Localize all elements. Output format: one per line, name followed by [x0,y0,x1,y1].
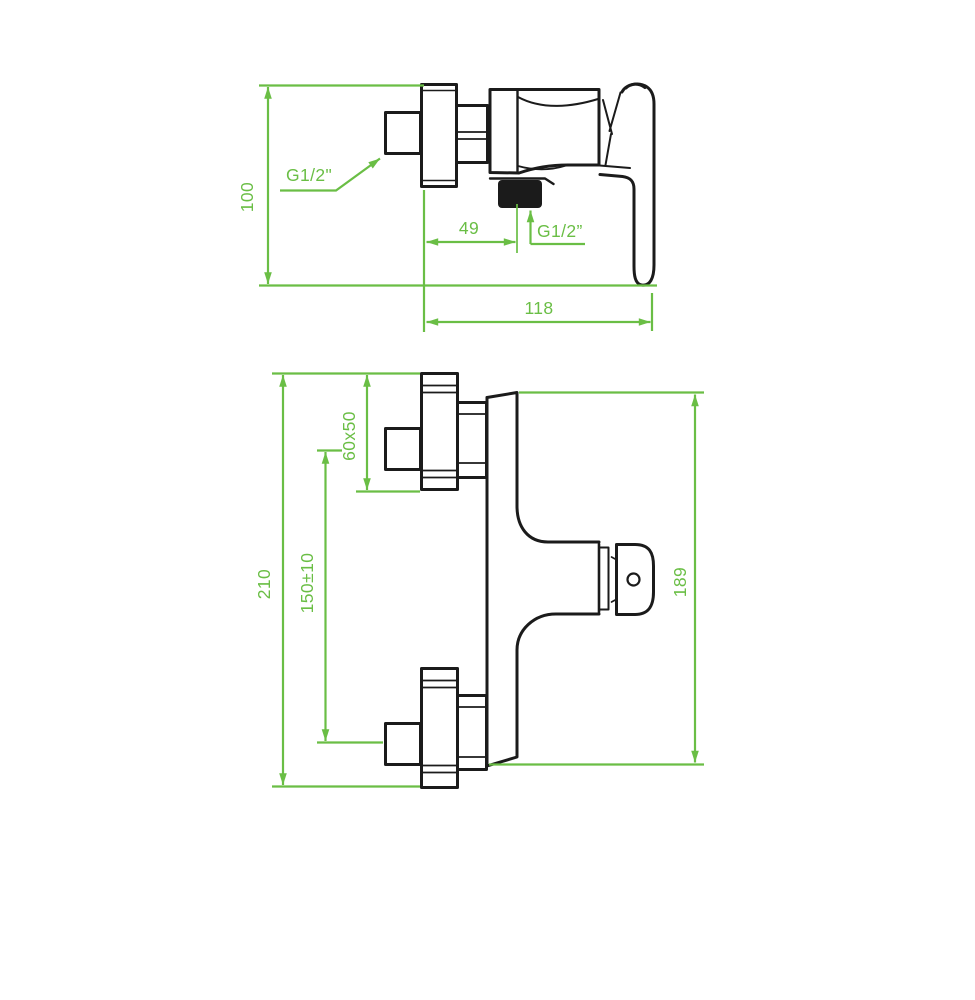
front-view-bottom-flange-ribs [422,681,458,773]
top-view-hex-nut [457,106,488,163]
front-view-body-upper [487,393,599,543]
dim-150-label: 150±10 [297,553,317,614]
front-view-faucet [386,374,654,788]
top-view-hex-facet-lines [457,132,488,139]
front-view-bottom-hex-lines [458,707,487,757]
top-view-flange-edge-lines [422,91,457,181]
front-view-knob-screw-hole [628,574,640,586]
top-view-dimensions: 100 G1/2" 49 G1/2” 118 [237,86,657,333]
front-view-top-flange-ribs [422,386,458,478]
top-view-handle-neck-lines [603,93,621,166]
dim-210-label: 210 [254,569,274,599]
top-view-wall-flange [422,85,457,187]
top-view-faucet [386,84,655,285]
dim-100-label: 100 [237,182,257,212]
top-view-handle-tip [626,84,645,88]
front-view-bottom-flange [422,669,458,788]
technical-drawing-page: 100 G1/2" 49 G1/2” 118 [0,0,975,1000]
front-view-body-lower [487,398,599,767]
top-view-inlet-square [386,113,421,154]
top-view-lever-handle [600,84,654,285]
top-view-handle-step-line [600,166,631,169]
front-view-top-inlet-square [386,429,421,470]
top-view-spout-outlet [498,180,542,208]
dim-189-label: 189 [670,567,690,597]
faucet-technical-drawing: 100 G1/2" 49 G1/2” 118 [0,0,975,1000]
front-view-knob-neck [599,548,609,610]
front-view-dimensions: 210 150±10 60x50 189 [254,374,704,787]
dim-60x50-label: 60x50 [339,411,359,461]
top-view-body-top-contour [518,97,598,106]
dim-150-ticks [317,451,383,743]
front-view-bottom-inlet-square [386,724,421,765]
dim-49-label: 49 [459,218,479,238]
dim-g12-inlet-label: G1/2" [286,165,332,185]
front-view-knob-face [617,545,654,615]
dim-118-label: 118 [524,298,553,318]
front-view-top-hex-lines [458,414,487,463]
dim-g12-spout-label: G1/2” [537,221,583,241]
front-view-top-flange [422,374,458,490]
